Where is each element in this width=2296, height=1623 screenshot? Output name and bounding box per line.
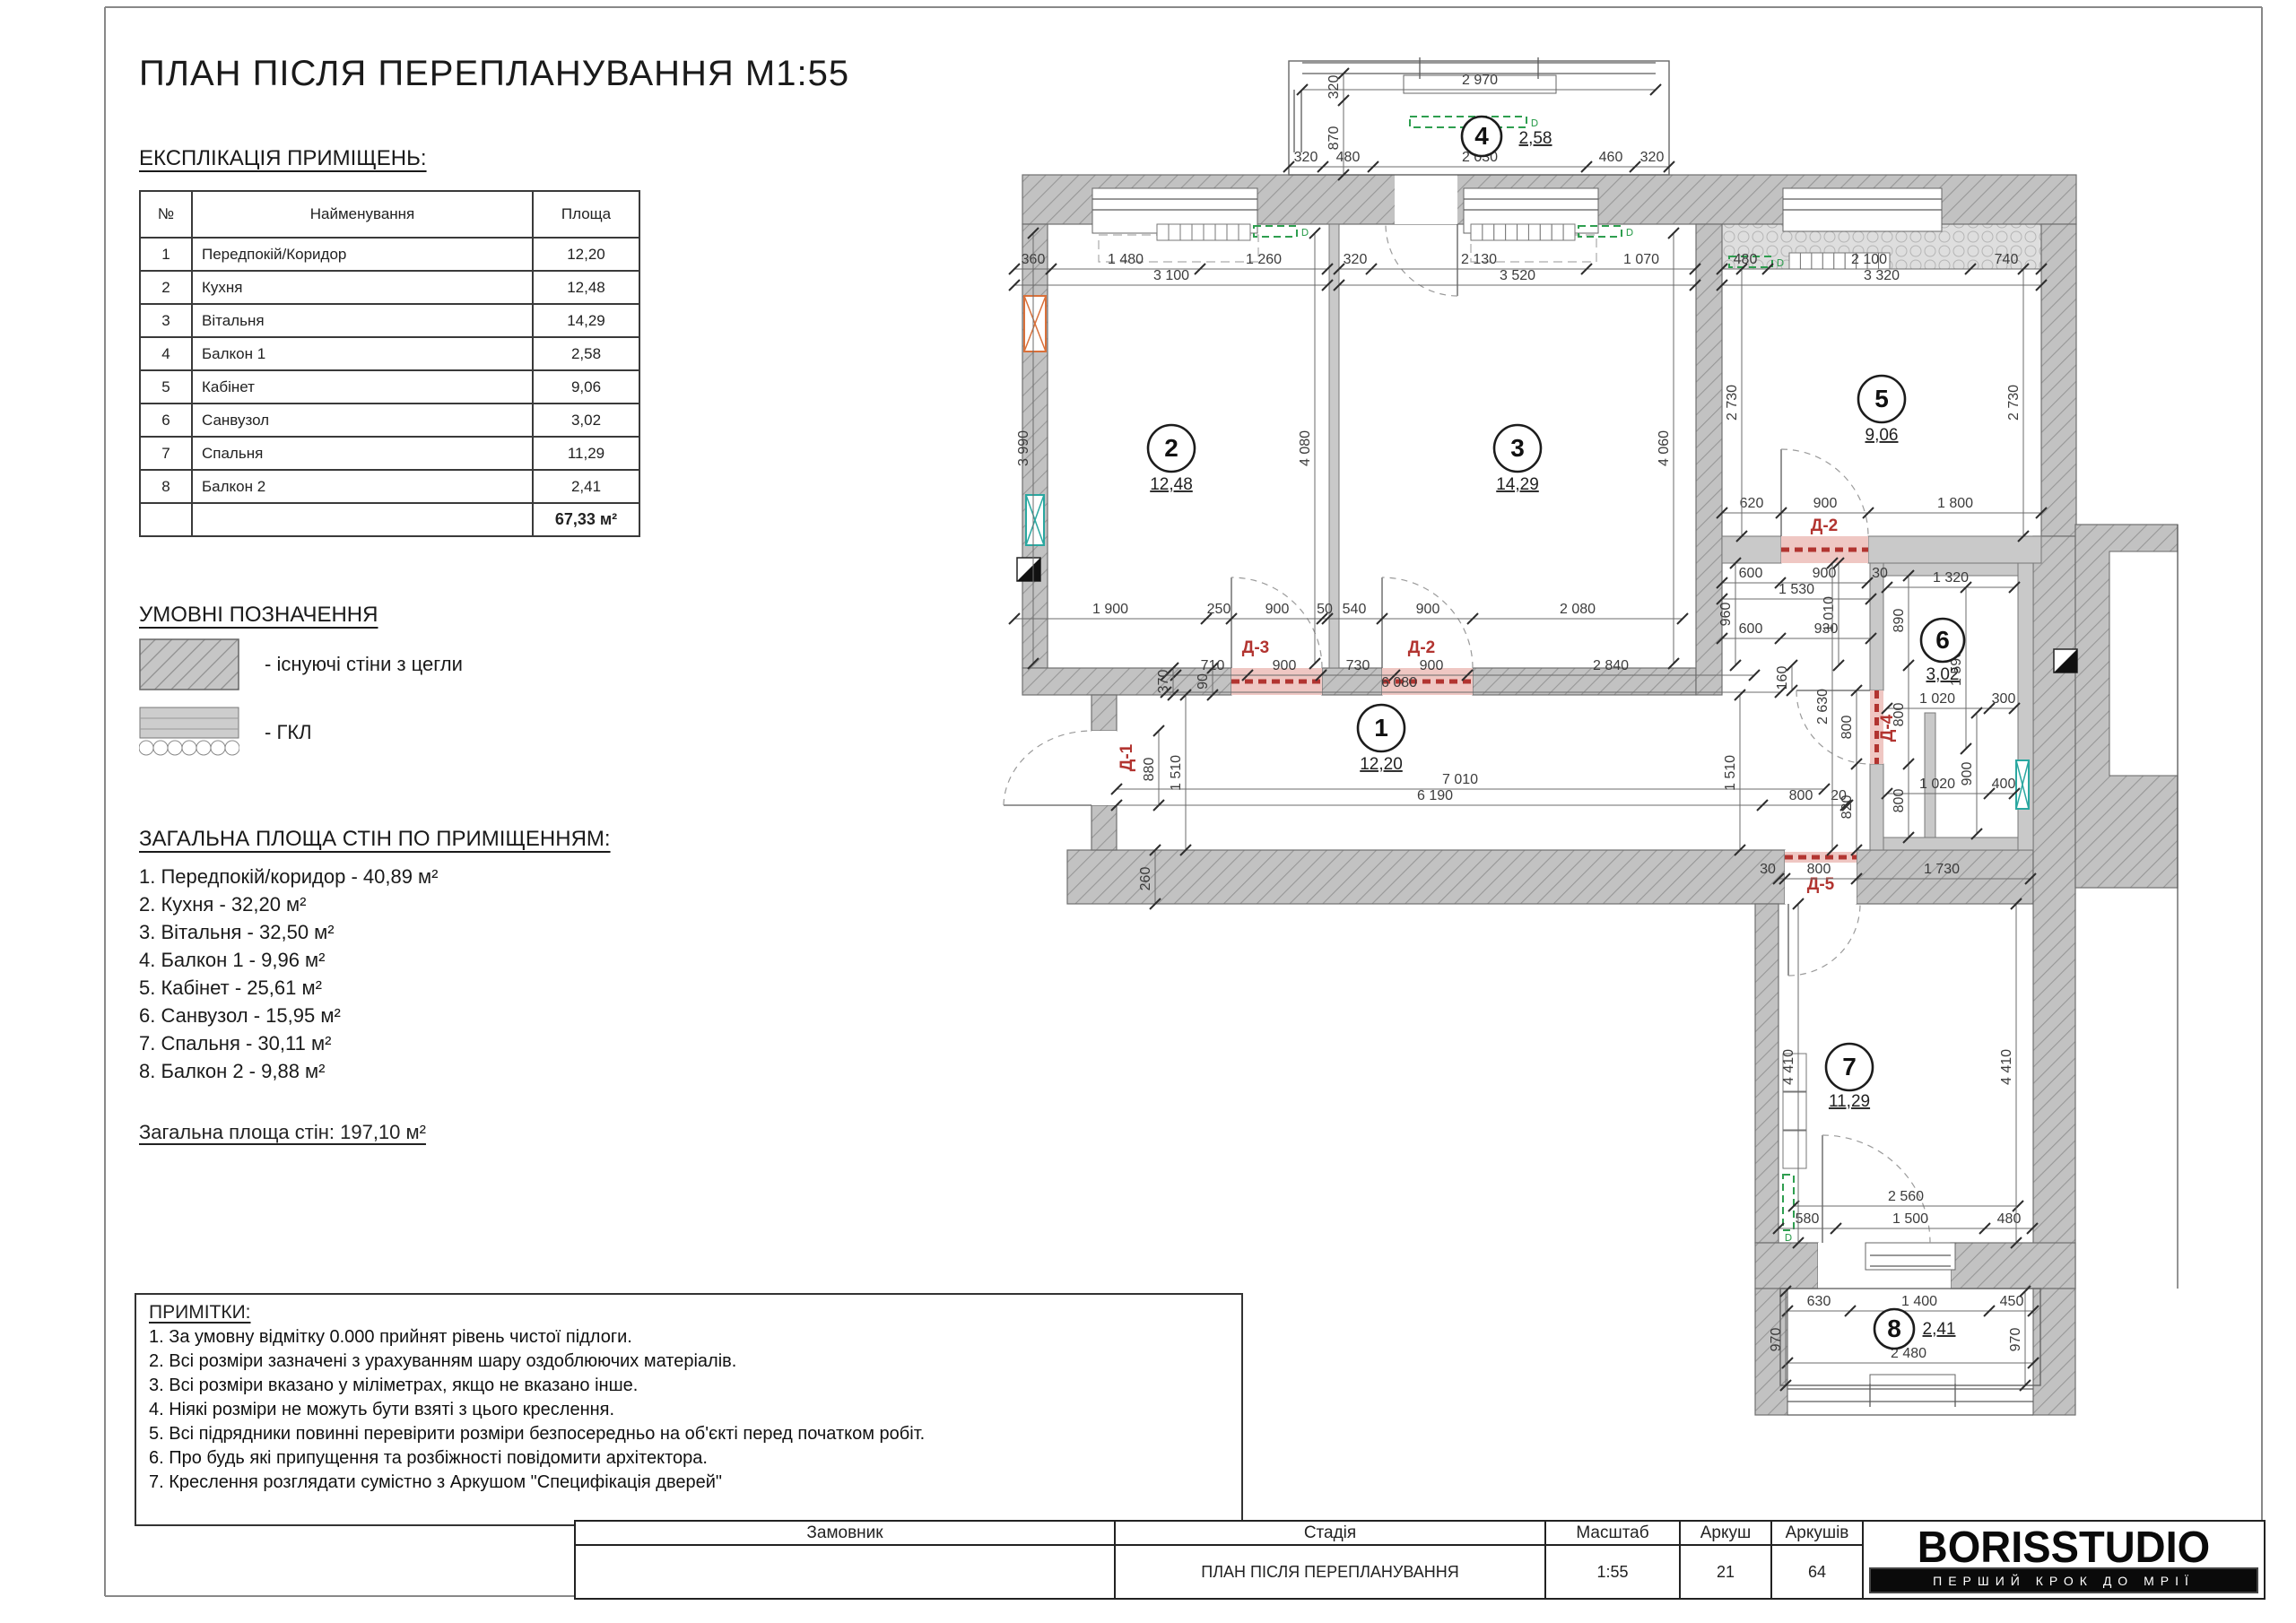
vent-symbol <box>1254 226 1297 237</box>
plan-text: Д-2 <box>1408 638 1435 657</box>
window-bay <box>1870 1375 1955 1389</box>
plan-text: 2 730 <box>2006 385 2022 421</box>
sheets-label: Аркушів <box>1772 1522 1862 1546</box>
radiator-segment <box>1215 224 1227 240</box>
plan-text: 11,29 <box>1829 1092 1870 1111</box>
plan-text: 7 <box>1842 1053 1857 1081</box>
gkl-wall <box>1868 536 2041 563</box>
plan-text: 2 080 <box>1560 602 1596 617</box>
door-swing-arc <box>1788 904 1860 976</box>
plan-text: 7 010 <box>1442 772 1478 787</box>
gkl-wall <box>1870 764 1883 850</box>
sheet-value: 21 <box>1681 1546 1770 1598</box>
plan-text: 890 <box>1892 609 1907 633</box>
logo-text: BORISSTUDIO <box>1869 1525 2258 1568</box>
radiator-segment <box>1506 224 1518 240</box>
radiator-segment <box>1157 224 1169 240</box>
brick-wall <box>1091 695 1117 731</box>
radiator-segment <box>1494 224 1506 240</box>
radiator-segment <box>1471 224 1483 240</box>
brick-wall <box>2033 1289 2075 1415</box>
radiator-segment <box>1204 224 1215 240</box>
plan-text: 1 020 <box>1919 691 1955 707</box>
plan-text: 1 260 <box>1246 252 1282 267</box>
logo-slogan: ПЕРШИЙ КРОК ДО МРІЇ <box>1869 1567 2258 1593</box>
radiator-segment <box>1227 224 1239 240</box>
plan-text: 14,29 <box>1496 475 1539 494</box>
radiator-segment <box>1483 224 1494 240</box>
brick-wall <box>1091 805 1117 850</box>
plan-text: 970 <box>2008 1328 2023 1352</box>
plan-text: Ⅾ <box>1531 118 1538 129</box>
sheet-label: Аркуш <box>1681 1522 1770 1546</box>
plan-text: 6 080 <box>1381 675 1417 690</box>
plan-text: 160 <box>1775 666 1790 690</box>
plan-text: 730 <box>1346 658 1370 673</box>
plan-text: 1 510 <box>1169 755 1184 791</box>
titleblock-customer: Замовник <box>576 1522 1116 1598</box>
plan-text: 2 630 <box>1815 689 1831 725</box>
plan-text: 1 530 <box>1779 582 1814 597</box>
plan-text: 320 <box>1294 150 1318 165</box>
plan-text: 370 <box>1156 670 1171 694</box>
radiator-segment <box>1540 224 1552 240</box>
plan-text: 4 410 <box>1999 1049 2014 1085</box>
brick-wall <box>1755 1243 1818 1289</box>
radiator-segment <box>1800 253 1811 269</box>
plan-text: 820 <box>1839 795 1855 820</box>
brick-wall <box>1755 904 1779 1243</box>
plan-text: 5 <box>1874 385 1889 412</box>
plan-text: 4 <box>1474 122 1489 150</box>
plan-text: 1 510 <box>1723 755 1738 791</box>
plan-text: 3 320 <box>1864 268 1900 283</box>
plan-text: 1 800 <box>1937 496 1973 511</box>
plan-text: 260 <box>1138 867 1153 891</box>
plan-text: 970 <box>1769 1328 1784 1352</box>
plan-text: 960 <box>1718 603 1734 627</box>
gkl-wall <box>1883 838 2018 850</box>
scale-label: Масштаб <box>1546 1522 1679 1546</box>
plan-text: 50 <box>1317 602 1333 617</box>
plan-text: 90 <box>1196 673 1211 690</box>
plan-text: 3 990 <box>1016 430 1031 466</box>
plan-text: 3 520 <box>1500 268 1535 283</box>
plan-text: 880 <box>1142 758 1157 782</box>
radiator-segment <box>1180 224 1192 240</box>
plan-text: 900 <box>1416 602 1440 617</box>
sheets-value: 64 <box>1772 1546 1862 1598</box>
scale-value: 1:55 <box>1546 1546 1679 1598</box>
plan-text: 1 070 <box>1623 252 1659 267</box>
customer-value <box>576 1546 1114 1598</box>
titleblock-stage: Стадія ПЛАН ПІСЛЯ ПЕРЕПЛАНУВАННЯ <box>1116 1522 1546 1598</box>
plan-text: 580 <box>1796 1211 1820 1227</box>
door-swing-arc <box>1796 690 1870 764</box>
plan-text: 1 010 <box>1822 596 1837 632</box>
radiator-segment <box>1789 253 1800 269</box>
plan-text: 2,41 <box>1923 1320 1956 1339</box>
plan-text: 600 <box>1739 566 1763 581</box>
plan-text: 2 560 <box>1888 1189 1924 1204</box>
plan-text: 480 <box>1997 1211 2022 1227</box>
plan-text: 1 730 <box>1924 862 1960 877</box>
plan-text: 800 <box>1807 862 1831 877</box>
plan-text: 3 100 <box>1153 268 1189 283</box>
plan-text: 400 <box>1992 777 2016 792</box>
radiator-segment <box>1518 224 1529 240</box>
plan-text: 870 <box>1326 126 1342 151</box>
plan-text: 2,58 <box>1519 129 1552 148</box>
brick-wall <box>1473 668 1696 695</box>
plan-text: 900 <box>1265 602 1290 617</box>
plan-text: Д-2 <box>1811 516 1838 535</box>
plan-text: 8 <box>1887 1315 1901 1342</box>
stage-label: Стадія <box>1116 1522 1544 1546</box>
plan-text: 740 <box>1995 252 2019 267</box>
window-bay <box>2109 551 2178 776</box>
plan-text: 600 <box>1739 621 1763 637</box>
drawing-sheet: ПЛАН ПІСЛЯ ПЕРЕПЛАНУВАННЯ М1:55 ЕКСПЛІКА… <box>0 0 2296 1623</box>
plan-text: 320 <box>1344 252 1368 267</box>
wardrobe <box>1783 1131 1806 1168</box>
plan-text: 1 900 <box>1092 602 1128 617</box>
gkl-wall <box>1722 536 1781 563</box>
plan-text: 4 060 <box>1657 430 1672 466</box>
plan-text: 6 <box>1935 626 1950 654</box>
plan-text: 2 840 <box>1593 658 1629 673</box>
plan-text: 800 <box>1892 789 1907 813</box>
plan-text: 540 <box>1343 602 1367 617</box>
plan-text: 4 080 <box>1298 430 1313 466</box>
gkl-wall <box>1870 563 1883 690</box>
plan-text: 630 <box>1807 1294 1831 1309</box>
plan-text: 1 320 <box>1933 570 1969 586</box>
titleblock-sheet: Аркуш 21 <box>1681 1522 1772 1598</box>
plan-text: 300 <box>1992 691 2016 707</box>
plan-text: 900 <box>1273 658 1297 673</box>
plan-text: 320 <box>1326 75 1342 100</box>
brick-wall <box>1067 850 1785 904</box>
plan-text: 800 <box>1789 788 1813 803</box>
plan-text: 30 <box>1872 566 1888 581</box>
plan-text: 460 <box>1599 150 1623 165</box>
plan-text: 900 <box>1960 762 1975 786</box>
plan-text: 900 <box>1813 496 1838 511</box>
plan-text: 2 730 <box>1725 385 1740 421</box>
plan-text: 2 970 <box>1462 73 1498 88</box>
plan-text: 2 130 <box>1461 252 1497 267</box>
plan-text: Д-3 <box>1242 638 1269 657</box>
radiator-segment <box>1528 224 1540 240</box>
plan-text: 12,48 <box>1150 475 1193 494</box>
plan-text: 1 480 <box>1108 252 1144 267</box>
stage-value: ПЛАН ПІСЛЯ ПЕРЕПЛАНУВАННЯ <box>1116 1546 1544 1598</box>
plan-text: 1 <box>1374 714 1388 742</box>
radiator-segment <box>1834 253 1845 269</box>
plan-text: Ⅾ <box>1785 1233 1792 1244</box>
radiator-segment <box>1822 253 1833 269</box>
door-swing-arc <box>1004 731 1091 805</box>
floor-plan: Д-3Д-2Д-2Д-4Д-5Д-1ⅮⅮⅮⅮⅮ2 9703204802 0304… <box>0 0 2296 1623</box>
titleblock: Замовник Стадія ПЛАН ПІСЛЯ ПЕРЕПЛАНУВАНН… <box>574 1520 2266 1600</box>
plan-text: 800 <box>1839 716 1855 740</box>
plan-text: 250 <box>1207 602 1231 617</box>
plan-text: Ⅾ <box>1777 258 1784 269</box>
customer-label: Замовник <box>576 1522 1114 1546</box>
plan-text: 800 <box>1892 703 1907 727</box>
plan-text: 480 <box>1336 150 1361 165</box>
wardrobe <box>1783 1092 1806 1130</box>
titleblock-sheets: Аркушів 64 <box>1772 1522 1864 1598</box>
plan-text: Д-1 <box>1118 743 1136 771</box>
wall-opening <box>1395 175 1457 224</box>
vent-symbol <box>1783 1175 1794 1230</box>
plan-text: 620 <box>1740 496 1764 511</box>
plan-text: 12,20 <box>1360 755 1403 774</box>
plan-text: 30 <box>1760 862 1776 877</box>
radiator-segment <box>1239 224 1250 240</box>
plan-text: Ⅾ <box>1626 228 1633 239</box>
plan-text: 3,02 <box>1926 665 1960 684</box>
plan-text: 1 020 <box>1919 777 1955 792</box>
radiator-segment <box>1563 224 1575 240</box>
plan-text: 1 400 <box>1901 1294 1937 1309</box>
plan-text: 2 100 <box>1851 252 1887 267</box>
borisstudio-logo: BORISSTUDIO ПЕРШИЙ КРОК ДО МРІЇ <box>1864 1522 2264 1598</box>
plan-text: 320 <box>1640 150 1665 165</box>
plan-text: Ⅾ <box>1301 228 1309 239</box>
radiator-segment <box>1169 224 1180 240</box>
plan-text: 900 <box>1420 658 1444 673</box>
brick-wall <box>1857 850 2033 904</box>
radiator-segment <box>1812 253 1822 269</box>
radiator-segment <box>1192 224 1204 240</box>
plan-text: 4 410 <box>1781 1049 1796 1085</box>
plan-text: Д-5 <box>1807 875 1835 894</box>
brick-wall <box>1951 1243 2075 1289</box>
radiator-segment <box>1552 224 1563 240</box>
plan-text: 9,06 <box>1865 426 1899 445</box>
titleblock-scale: Масштаб 1:55 <box>1546 1522 1681 1598</box>
plan-text: 1 500 <box>1892 1211 1928 1227</box>
plan-text: 3 <box>1510 434 1525 462</box>
plan-text: 6 190 <box>1417 788 1453 803</box>
gkl-wall <box>1925 713 1935 838</box>
plan-text: 2 <box>1164 434 1178 462</box>
brick-wall <box>2041 224 2076 536</box>
